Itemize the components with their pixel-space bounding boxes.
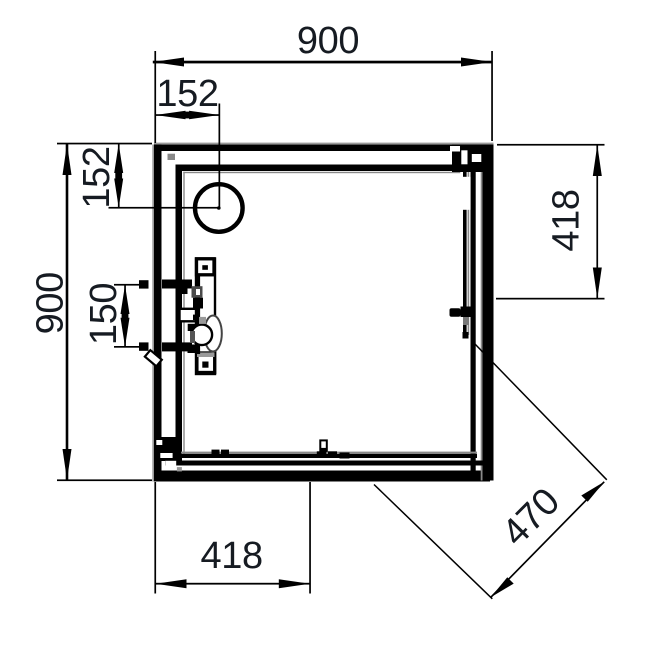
svg-text:150: 150 [83, 283, 125, 345]
svg-text:900: 900 [29, 272, 71, 334]
svg-text:418: 418 [200, 535, 262, 577]
svg-text:418: 418 [546, 189, 588, 251]
svg-text:900: 900 [297, 20, 359, 62]
svg-text:152: 152 [76, 146, 118, 208]
svg-text:152: 152 [156, 73, 218, 115]
